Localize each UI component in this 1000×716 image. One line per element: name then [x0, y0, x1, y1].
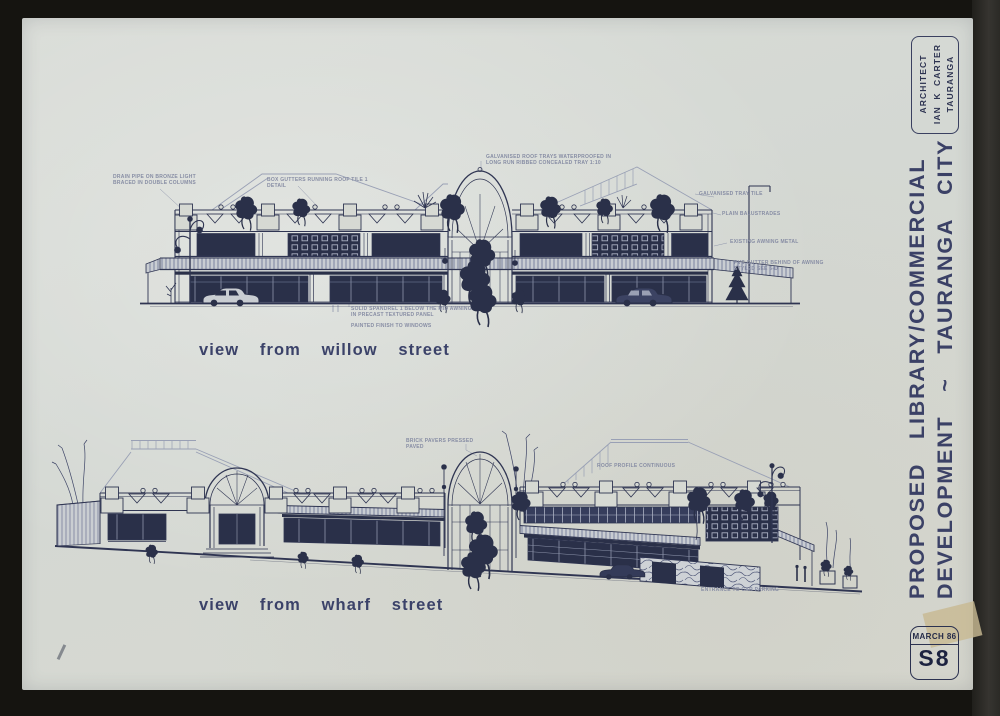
annotation-upper-a8: SOLID SPANDREL 1 BELOW THE MID AWNING IN… — [351, 306, 472, 318]
lower-atrium-plant — [461, 511, 498, 590]
bollards — [795, 565, 806, 582]
annotation-upper-a3: GALVANISED ROOF TRAYS WATERPROOFED IN LO… — [486, 154, 611, 166]
annotation-upper-a4: GALVANISED TRAY TILE — [699, 191, 763, 197]
lower-elevation-wharf-street — [52, 431, 862, 594]
lower-left-annex — [57, 501, 100, 546]
architect-stamp-box — [911, 36, 959, 134]
project-title-line2: DEVELOPMENT ~ TAURANGA CITY — [931, 147, 959, 599]
upper-view-label: view from willow street — [199, 341, 450, 360]
annotation-lower-b3: ENTRANCE TO CAR PARKING — [701, 587, 779, 593]
elevation-drawings — [0, 0, 1000, 716]
annotation-lower-b2: ROOF PROFILE CONTINUOUS — [597, 463, 675, 469]
lower-view-label: view from wharf street — [199, 596, 443, 615]
annotation-upper-a1: DRAIN PIPE ON BRONZE LIGHT BRACED IN DOU… — [113, 174, 196, 186]
annotation-upper-a9: PAINTED FINISH TO WINDOWS — [351, 323, 432, 329]
scanned-drawing-sheet: DRAIN PIPE ON BRONZE LIGHT BRACED IN DOU… — [0, 0, 1000, 716]
pot-plants — [821, 560, 854, 581]
sheet-date: MARCH 86 — [911, 627, 958, 645]
annotation-upper-a2: BOX GUTTERS RUNNING ROOF TILE 1 DETAIL — [267, 177, 368, 189]
sheet-number-box: MARCH 86 S8 — [910, 626, 959, 680]
project-title-block: PROPOSED LIBRARY/COMMERCIAL DEVELOPMENT … — [903, 147, 959, 599]
project-title-line1: PROPOSED LIBRARY/COMMERCIAL — [903, 147, 931, 599]
sheet-number: S8 — [911, 645, 958, 670]
annotation-upper-a7: PVC GUTTER BEHIND OF AWNING STYLED SEE 5… — [734, 260, 824, 272]
annotation-upper-a6: EXISTING AWNING METAL — [730, 239, 799, 245]
annotation-upper-a5: PLAIN BALUSTRADES — [722, 211, 780, 217]
annotation-lower-b1: BRICK PAVERS PRESSED PAVED — [406, 438, 473, 450]
upper-elevation-willow-street — [140, 161, 800, 327]
